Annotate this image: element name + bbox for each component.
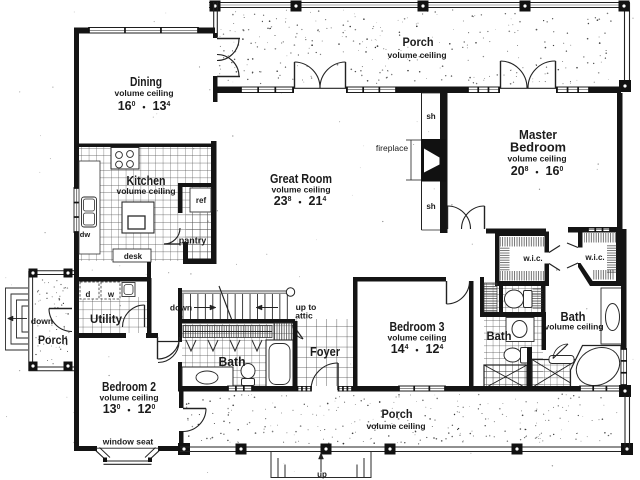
svg-text:window seat: window seat [102, 437, 154, 447]
svg-text:Porch: Porch [38, 335, 68, 347]
svg-text:Bedroom: Bedroom [510, 141, 566, 155]
svg-text:144 • 124: 144 • 124 [391, 342, 444, 356]
svg-text:w: w [107, 290, 115, 299]
svg-text:Bath: Bath [219, 355, 246, 369]
svg-text:ref: ref [196, 196, 207, 205]
svg-text:volume ceiling: volume ceiling [544, 322, 603, 332]
svg-text:volume ceiling: volume ceiling [271, 185, 330, 195]
svg-text:attic: attic [295, 311, 313, 321]
svg-text:up: up [317, 470, 327, 479]
svg-text:Utility: Utility [90, 314, 123, 326]
svg-text:238 • 214: 238 • 214 [274, 194, 327, 208]
svg-text:volume ceiling: volume ceiling [116, 186, 175, 196]
svg-text:volume ceiling: volume ceiling [387, 333, 446, 343]
svg-text:volume ceiling: volume ceiling [114, 88, 173, 98]
svg-text:160 • 134: 160 • 134 [118, 99, 171, 113]
svg-text:208 • 160: 208 • 160 [511, 164, 564, 178]
svg-text:dw: dw [80, 230, 91, 239]
svg-text:desk: desk [124, 252, 143, 261]
svg-text:volume ceiling: volume ceiling [366, 421, 425, 431]
svg-text:Dining: Dining [130, 75, 162, 89]
svg-text:volume ceiling: volume ceiling [99, 393, 158, 403]
svg-text:Porch: Porch [382, 409, 413, 421]
svg-text:Porch: Porch [403, 37, 434, 49]
svg-text:sh: sh [426, 202, 435, 211]
svg-text:down: down [31, 316, 53, 326]
svg-text:w.i.c.: w.i.c. [522, 254, 542, 263]
svg-text:d: d [86, 290, 91, 299]
svg-text:sh: sh [426, 112, 435, 121]
svg-text:130 • 120: 130 • 120 [103, 402, 156, 416]
svg-text:w.i.c.: w.i.c. [584, 253, 604, 262]
svg-text:volume ceiling: volume ceiling [387, 50, 446, 60]
svg-text:Bath: Bath [487, 331, 512, 343]
svg-text:Foyer: Foyer [310, 345, 340, 359]
svg-text:fireplace: fireplace [376, 143, 408, 153]
svg-text:volume ceiling: volume ceiling [507, 154, 566, 164]
svg-text:pantry: pantry [179, 236, 207, 246]
